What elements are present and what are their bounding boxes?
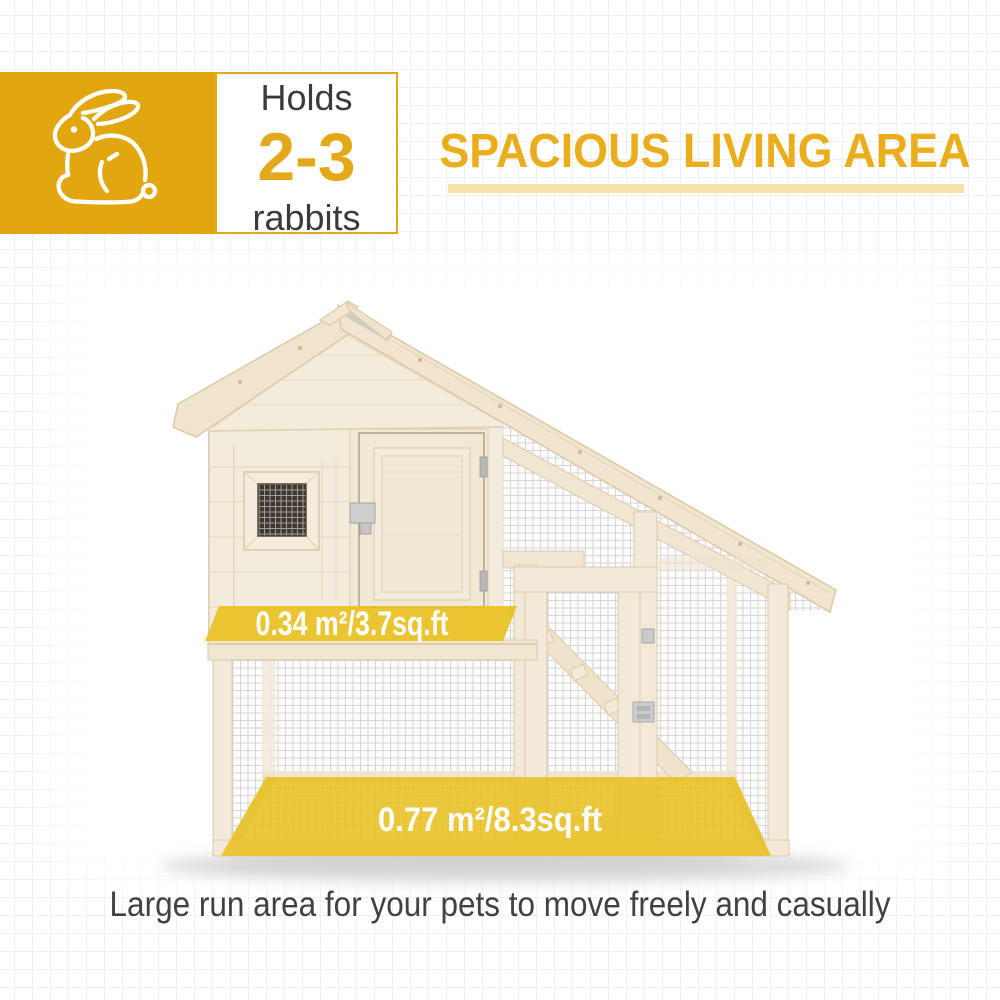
svg-text:0.77 m²/8.3sq.ft: 0.77 m²/8.3sq.ft (378, 801, 602, 839)
svg-text:0.34 m²/3.7sq.ft: 0.34 m²/3.7sq.ft (256, 605, 449, 643)
